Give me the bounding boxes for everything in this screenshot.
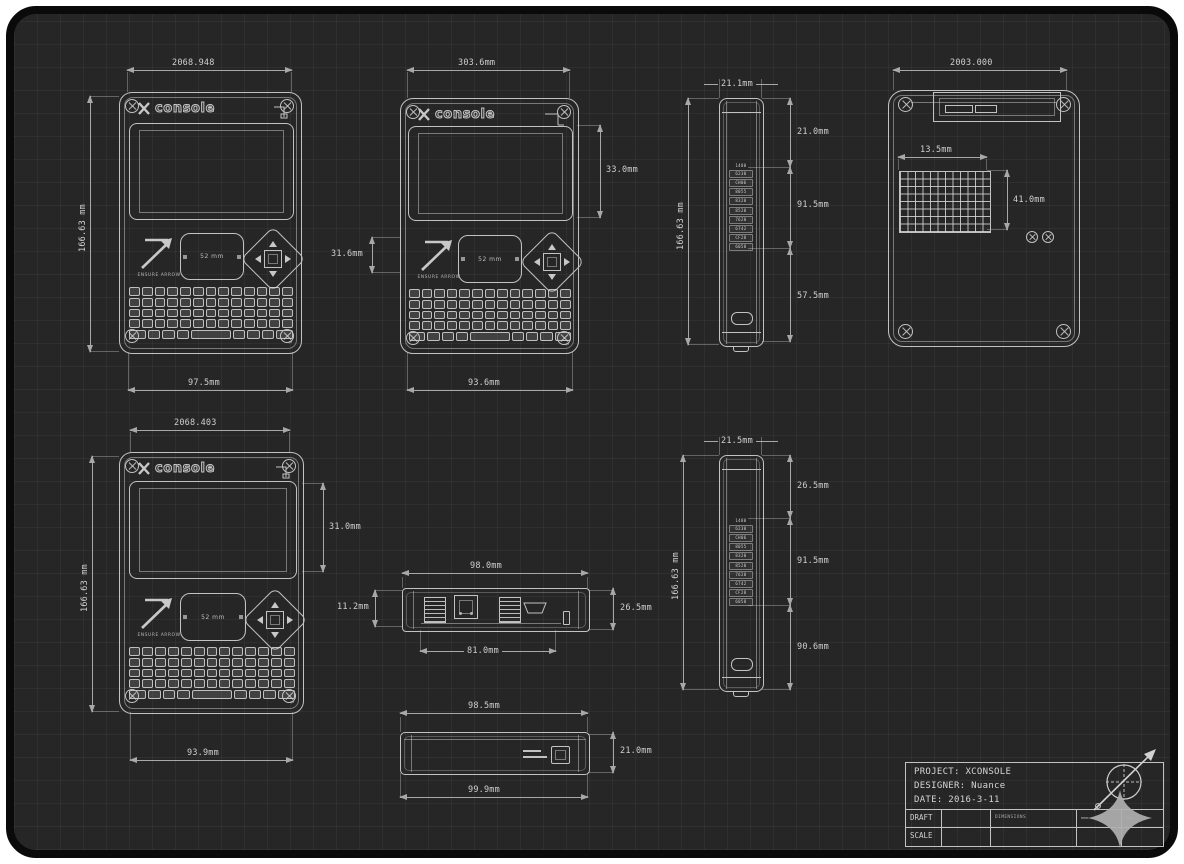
- side-port-label-stack: 14806230CH0680558320852076206742CF286058: [726, 518, 756, 606]
- keyboard-key: [168, 658, 179, 667]
- view-front-c: console ENSURE ARROW 52 mm ↵: [119, 452, 304, 714]
- keyboard-key: [447, 300, 458, 309]
- screw-icon: [1056, 324, 1071, 339]
- dim-v8-seg1: [790, 455, 791, 518]
- keyboard-key: [155, 669, 166, 678]
- keyboard-key: [282, 298, 293, 307]
- screw-icon: [125, 329, 139, 343]
- keyboard-key: [284, 647, 295, 656]
- keyboard-key: [409, 300, 420, 309]
- dim-v8-seg3: [790, 605, 791, 690]
- keyboard-key: [548, 300, 559, 309]
- keyboard-key: [472, 311, 483, 320]
- dim-v5-left: [92, 456, 93, 712]
- keyboard-key: [181, 669, 192, 678]
- extension-line: [762, 689, 790, 690]
- dim-label-v8-seg2: 91.5mm: [797, 557, 829, 566]
- keyboard-key: [560, 321, 571, 330]
- keyboard-key: [194, 647, 205, 656]
- extension-line: [719, 437, 720, 455]
- title-block-cell: [942, 828, 991, 846]
- keyboard-key: [148, 690, 161, 699]
- keyboard-key: [180, 287, 191, 296]
- extension-line: [292, 352, 293, 390]
- dim-v2-trackpad: [372, 237, 373, 273]
- vent-grille-icon: [424, 597, 446, 623]
- keyboard-key: [472, 321, 483, 330]
- keyboard-key: [262, 330, 274, 339]
- screw-icon: [557, 331, 571, 345]
- screw-icon: [1026, 231, 1038, 243]
- keyboard-key: [180, 319, 191, 328]
- keyboard-key: [245, 647, 256, 656]
- keyboard-key: [194, 679, 205, 688]
- dim-label-v8-top: 21.5mm: [718, 437, 756, 446]
- dpad-left-icon: [255, 255, 261, 263]
- extension-line: [400, 773, 401, 797]
- dim-label-v6-bottom: 81.0mm: [464, 647, 502, 656]
- keyboard-key: [193, 287, 204, 296]
- keyboard-key: [163, 690, 176, 699]
- keyboard-key: [148, 330, 160, 339]
- dim-v8-left: [683, 455, 684, 690]
- keyboard-key: [233, 330, 245, 339]
- dim-v3-seg3: [790, 248, 791, 342]
- keyboard-key: [142, 309, 153, 318]
- keyboard-key: [247, 330, 259, 339]
- title-block-designer: DESIGNER: Nuance: [914, 781, 1006, 792]
- keyboard-key: [269, 309, 280, 318]
- arrow-caption: ENSURE ARROW: [132, 633, 186, 638]
- side-port-label: 6230: [729, 525, 753, 533]
- keyboard-key: [219, 669, 230, 678]
- keyboard-key: [472, 289, 483, 298]
- dim-label-v5-top: 2068.403: [174, 419, 217, 428]
- side-port-label: 8320: [729, 197, 753, 205]
- extension-line: [588, 629, 613, 630]
- trackpad: 52 mm: [180, 593, 246, 641]
- trackpad-label: 52 mm: [200, 253, 224, 260]
- keyboard-key: [447, 321, 458, 330]
- keyboard-key: [231, 319, 242, 328]
- side-port-label: 6742: [729, 225, 753, 233]
- keyboard-key: [167, 287, 178, 296]
- keyboard-key: [497, 311, 508, 320]
- dpad-up-icon: [548, 244, 556, 250]
- battery-latch: [945, 105, 973, 113]
- keyboard-key: [129, 679, 140, 688]
- dpad-right-icon: [564, 258, 570, 266]
- extension-line: [291, 72, 292, 92]
- dpad-right-icon: [285, 255, 291, 263]
- extension-line: [748, 167, 790, 168]
- keyboard-key: [522, 300, 533, 309]
- keyboard-key: [232, 679, 243, 688]
- extension-line: [130, 432, 131, 452]
- dim-label-v2-top: 303.6mm: [458, 59, 495, 68]
- keyboard-key: [218, 309, 229, 318]
- extension-line: [402, 577, 403, 588]
- dim-v3-left: [688, 98, 689, 345]
- keyboard-key: [535, 321, 546, 330]
- x-mark-icon: [137, 461, 151, 476]
- keyboard-key: [244, 309, 255, 318]
- keyboard-key: [427, 332, 439, 341]
- side-port-label: 8520: [729, 207, 753, 215]
- dim-v5-screen: [323, 483, 324, 572]
- keyboard-key: [142, 658, 153, 667]
- dpad-center-button: [543, 253, 561, 271]
- dim-v6-left: [375, 590, 376, 627]
- keyboard-key: [282, 309, 293, 318]
- extension-line: [572, 352, 573, 390]
- keyboard-key: [162, 330, 174, 339]
- blueprint-stage: console ENSURE ARROW 52 mm ↵ 2068.948 16…: [0, 0, 1184, 864]
- dim-label-v5-bottom: 93.9mm: [187, 749, 219, 758]
- dim-v1-left: [90, 96, 91, 352]
- keyboard-key: [142, 647, 153, 656]
- keyboard-key: [456, 332, 468, 341]
- keyboard-key: [284, 669, 295, 678]
- keyboard-key: [142, 669, 153, 678]
- dim-label-v7-right: 21.0mm: [620, 747, 652, 756]
- extension-line: [1066, 72, 1067, 90]
- view-front-b: console ENSURE ARROW 52 mm ↵: [400, 98, 579, 354]
- keyboard-key: [167, 319, 178, 328]
- side-port-oval: [731, 312, 753, 325]
- extension-line: [127, 72, 128, 92]
- battery-latch: [975, 105, 997, 113]
- back-seam-line: [911, 102, 1057, 103]
- dim-label-v6-left: 11.2mm: [337, 603, 369, 612]
- keyboard-key: [231, 309, 242, 318]
- extension-line: [762, 98, 790, 99]
- dim-v2-top: [407, 70, 570, 71]
- extension-line: [748, 248, 790, 249]
- extension-line: [555, 630, 556, 651]
- keyboard-key: [442, 332, 454, 341]
- keyboard-key: [155, 309, 166, 318]
- dpad: [252, 597, 298, 643]
- side-port-label: CF28: [729, 589, 753, 597]
- edge-inner-line: [411, 735, 412, 772]
- keyboard: [129, 647, 295, 699]
- screen-inner: [139, 488, 287, 572]
- extension-line: [420, 630, 421, 651]
- extension-line: [375, 626, 402, 627]
- keyboard-key: [177, 330, 189, 339]
- dim-v1-bottom: [128, 390, 293, 391]
- title-block-scale-label: SCALE: [906, 828, 942, 846]
- keyboard-key: [129, 669, 140, 678]
- dpad-down-icon: [271, 632, 279, 638]
- side-inner-line: [756, 458, 757, 689]
- arrow-caption: ENSURE ARROW: [132, 273, 186, 278]
- view-bottom-edge: [400, 732, 590, 775]
- keyboard-key: [485, 300, 496, 309]
- trackpad-label: 52 mm: [201, 614, 225, 621]
- extension-line: [400, 717, 401, 732]
- keyboard-key: [245, 679, 256, 688]
- extension-line: [761, 79, 762, 98]
- keyboard-key: [282, 287, 293, 296]
- screw-icon: [1042, 231, 1054, 243]
- extension-line: [683, 455, 719, 456]
- keyboard-key: [168, 647, 179, 656]
- keyboard-key: [510, 300, 521, 309]
- keyboard-key: [497, 289, 508, 298]
- card-slot-icon: [523, 750, 541, 752]
- dim-label-v1-bottom: 97.5mm: [188, 379, 220, 388]
- screw-icon: [557, 105, 571, 119]
- keyboard-key: [535, 311, 546, 320]
- keyboard-key: [177, 690, 190, 699]
- keyboard-key: [257, 287, 268, 296]
- view-side-a: 14806230CH0680558320852076206742CF286058: [719, 98, 764, 347]
- keyboard-key: [269, 287, 280, 296]
- side-inner-line: [756, 101, 757, 344]
- keyboard-key: [560, 311, 571, 320]
- keyboard-key: [459, 321, 470, 330]
- keyboard-key: [459, 300, 470, 309]
- keyboard-key: [207, 679, 218, 688]
- dim-label-v4-vent-h: 41.0mm: [1013, 196, 1045, 205]
- title-block-project: PROJECT: XCONSOLE: [914, 767, 1011, 778]
- side-port-label: 7620: [729, 216, 753, 224]
- side-port-label: CH06: [729, 179, 753, 187]
- dim-label-v2-trackpad: 31.6mm: [331, 250, 363, 259]
- keyboard-key: [155, 679, 166, 688]
- keyboard-key: [535, 300, 546, 309]
- keyboard-key: [193, 319, 204, 328]
- keyboard-key: [258, 669, 269, 678]
- keyboard-key: [447, 289, 458, 298]
- dim-label-v7-top: 98.5mm: [468, 702, 500, 711]
- keyboard-key: [257, 309, 268, 318]
- dim-label-v5-left: 166.63 mm: [81, 564, 90, 612]
- screw-icon: [1056, 97, 1071, 112]
- keyboard-key: [142, 679, 153, 688]
- extension-line: [128, 352, 129, 390]
- keyboard-key: [219, 679, 230, 688]
- side-port-label: 7620: [729, 571, 753, 579]
- dpad-left-icon: [534, 258, 540, 266]
- extension-line: [577, 125, 600, 126]
- x-mark-icon: [137, 101, 151, 116]
- keyboard-key: [180, 309, 191, 318]
- extension-line: [588, 772, 613, 773]
- dpad-up-icon: [269, 241, 277, 247]
- device-logo: console: [137, 101, 215, 116]
- dim-label-v3-seg2: 91.5mm: [797, 201, 829, 210]
- dpad-left-icon: [257, 616, 263, 624]
- dim-v7-bottom: [400, 797, 588, 798]
- trackpad: 52 mm: [180, 233, 244, 280]
- dim-v5-top: [130, 430, 290, 431]
- keyboard-key: [206, 309, 217, 318]
- view-back: [888, 90, 1080, 347]
- keyboard-key: [219, 647, 230, 656]
- keyboard-key: [485, 321, 496, 330]
- keyboard-key: [497, 300, 508, 309]
- keyboard-key: [271, 669, 282, 678]
- keyboard-key: [409, 311, 420, 320]
- keyboard-key: [206, 298, 217, 307]
- keyboard-key: [269, 298, 280, 307]
- keyboard-key: [207, 658, 218, 667]
- keyboard-key: [258, 658, 269, 667]
- keyboard-key: [218, 319, 229, 328]
- screw-icon: [898, 97, 913, 112]
- screw-icon: [125, 99, 139, 113]
- extension-line: [302, 571, 323, 572]
- extension-line: [588, 590, 613, 591]
- keyboard-key: [522, 311, 533, 320]
- extension-line: [90, 96, 119, 97]
- keyboard-key: [194, 658, 205, 667]
- keyboard-key: [180, 298, 191, 307]
- screw-icon: [406, 105, 420, 119]
- keyboard-key: [181, 679, 192, 688]
- keyboard-key: [258, 679, 269, 688]
- keyboard-key: [548, 321, 559, 330]
- trackpad: 52 mm: [458, 235, 522, 283]
- keyboard-key: [193, 309, 204, 318]
- compass-star-logo: [1078, 742, 1170, 850]
- keyboard-key: [206, 319, 217, 328]
- extension-line: [762, 341, 790, 342]
- keyboard-key: [269, 319, 280, 328]
- keyboard-key: [155, 319, 166, 328]
- keyboard-key: [167, 309, 178, 318]
- keyboard-key: [510, 311, 521, 320]
- keyboard-key: [271, 647, 282, 656]
- keyboard-key: [422, 300, 433, 309]
- dim-label-v5-screen: 31.0mm: [329, 523, 361, 532]
- edge-seam-line: [404, 739, 586, 740]
- keyboard-key: [422, 289, 433, 298]
- keyboard-key: [459, 311, 470, 320]
- keyboard-key: [485, 289, 496, 298]
- dim-label-v1-top: 2068.948: [172, 59, 215, 68]
- extension-line: [748, 605, 790, 606]
- logo-word: console: [155, 461, 215, 476]
- keyboard-key: [409, 321, 420, 330]
- side-port-label: CF28: [729, 234, 753, 242]
- view-front-a: console ENSURE ARROW 52 mm ↵: [119, 92, 302, 354]
- arrow-logo-icon: [418, 237, 460, 273]
- keyboard-key: [257, 298, 268, 307]
- extension-line: [587, 773, 588, 797]
- keyboard-key: [447, 311, 458, 320]
- keyboard-key: [257, 319, 268, 328]
- keyboard-key: [193, 298, 204, 307]
- extension-line: [748, 518, 790, 519]
- side-port-label: 6058: [729, 243, 753, 251]
- dim-label-v7-bottom: 99.9mm: [468, 786, 500, 795]
- title-block-cell: [991, 828, 1077, 846]
- card-slot-icon: [523, 756, 547, 758]
- keyboard-key: [459, 289, 470, 298]
- keyboard-key: [258, 647, 269, 656]
- side-port-label: 6230: [729, 170, 753, 178]
- keyboard-key: [168, 679, 179, 688]
- keyboard-key: [434, 311, 445, 320]
- dim-label-v3-seg3: 57.5mm: [797, 292, 829, 301]
- keyboard-key: [142, 287, 153, 296]
- keyboard-key: [548, 311, 559, 320]
- ethernet-port-icon: [454, 595, 478, 619]
- side-foot: [733, 346, 749, 352]
- dim-v7-right: [613, 732, 614, 773]
- keyboard-key: [271, 679, 282, 688]
- dpad: [250, 236, 296, 282]
- dim-v5-bottom: [130, 760, 293, 761]
- arrow-logo-icon: [138, 595, 180, 631]
- screw-icon: [280, 99, 294, 113]
- keyboard-key: [129, 647, 140, 656]
- keyboard-key: [142, 319, 153, 328]
- keyboard-key: [232, 669, 243, 678]
- extension-line: [762, 455, 790, 456]
- dim-v6-right: [613, 588, 614, 630]
- keyboard-key: [155, 298, 166, 307]
- keyboard-key: [155, 658, 166, 667]
- dim-label-v2-bottom: 93.6mm: [468, 379, 500, 388]
- edge-inner-line: [578, 591, 579, 629]
- dim-label-v3-top: 21.1mm: [718, 80, 756, 89]
- dim-v3-seg1: [790, 98, 791, 167]
- dim-label-v3-seg1: 21.0mm: [797, 128, 829, 137]
- edge-inner-line: [413, 591, 414, 629]
- dpad-center-button: [264, 250, 282, 268]
- view-side-b: 14806230CH0680558320852076206742CF286058: [719, 455, 764, 692]
- dim-v8-seg2: [790, 518, 791, 605]
- dpad-down-icon: [548, 274, 556, 280]
- screw-icon: [282, 459, 296, 473]
- keyboard-key: [244, 319, 255, 328]
- side-port-label: 8055: [729, 188, 753, 196]
- keyboard-key: [231, 287, 242, 296]
- keyboard-key: [526, 332, 538, 341]
- extension-line: [688, 98, 719, 99]
- keyboard-key: [168, 669, 179, 678]
- extension-line: [986, 159, 987, 170]
- keyboard-key: [181, 658, 192, 667]
- keyboard-key: [142, 298, 153, 307]
- extension-line: [292, 712, 293, 760]
- logo-word: console: [155, 101, 215, 116]
- keyboard-key: [231, 298, 242, 307]
- extension-line: [302, 483, 323, 484]
- keyboard-key: [155, 647, 166, 656]
- keyboard-key: [192, 690, 232, 699]
- screen-inner: [139, 130, 284, 213]
- extension-line: [90, 351, 119, 352]
- keyboard-key: [434, 289, 445, 298]
- side-port-oval: [731, 658, 753, 671]
- keyboard-key: [244, 298, 255, 307]
- keyboard-key: [218, 287, 229, 296]
- trackpad-label: 52 mm: [478, 256, 502, 263]
- extension-line: [987, 229, 1007, 230]
- keyboard-key: [470, 332, 509, 341]
- dim-v1-top: [127, 70, 292, 71]
- extension-line: [407, 352, 408, 390]
- dpad-up-icon: [271, 602, 279, 608]
- keyboard-key: [510, 289, 521, 298]
- keyboard-key: [129, 319, 140, 328]
